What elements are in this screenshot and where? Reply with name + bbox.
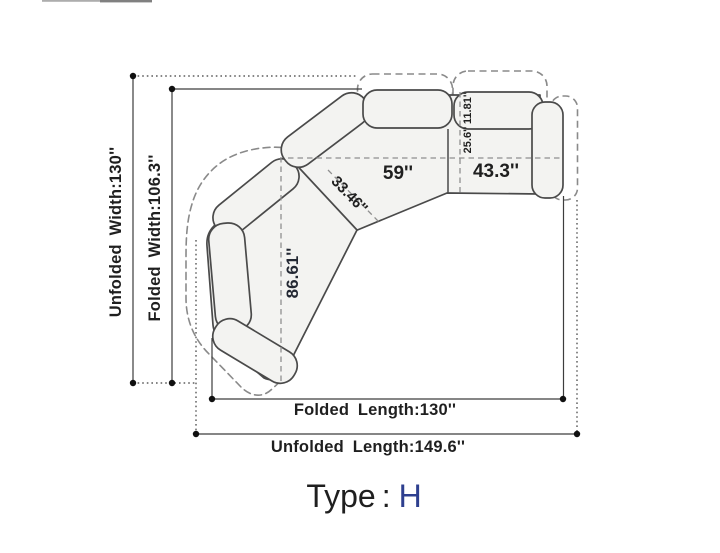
folded-length-label: Folded Length:130'' (294, 401, 456, 419)
type-title-separator: : (382, 478, 391, 514)
folded-width-label: Folded Width:106.3'' (146, 155, 164, 322)
seat-depth-label: 25.6'' (462, 126, 474, 153)
dim-dot (574, 431, 580, 437)
sofa-dimension-diagram-page: Unfolded Width:130'' Folded Width:106.3'… (0, 0, 720, 553)
unfolded-length-label: Unfolded Length:149.6'' (271, 438, 465, 456)
dim-dot (130, 380, 136, 386)
dim-dot (169, 86, 175, 92)
type-title-prefix: Type (306, 478, 375, 514)
unfolded-width-label: Unfolded Width:130'' (107, 147, 125, 318)
right-seat-width-label: 43.3'' (473, 161, 519, 182)
center-seat-width-label: 59'' (383, 163, 413, 184)
dim-dot (560, 396, 566, 402)
dim-dot (169, 380, 175, 386)
sofa-pieces (206, 86, 563, 389)
backrest-depth-label: 11.81'' (462, 92, 474, 125)
dim-dot (193, 431, 199, 437)
chaise-length-label: 86.61'' (283, 248, 302, 299)
type-title-value: H (399, 478, 422, 514)
dim-dot (130, 73, 136, 79)
center-backrest-cushion (363, 90, 452, 128)
top-edge-artifact-dark (100, 0, 152, 2)
right-armrest (532, 102, 563, 198)
type-title: Type:H (306, 478, 421, 514)
top-edge-artifact (42, 0, 100, 2)
dim-dot (209, 396, 215, 402)
sofa-dimension-diagram: Unfolded Width:130'' Folded Width:106.3'… (0, 0, 720, 553)
